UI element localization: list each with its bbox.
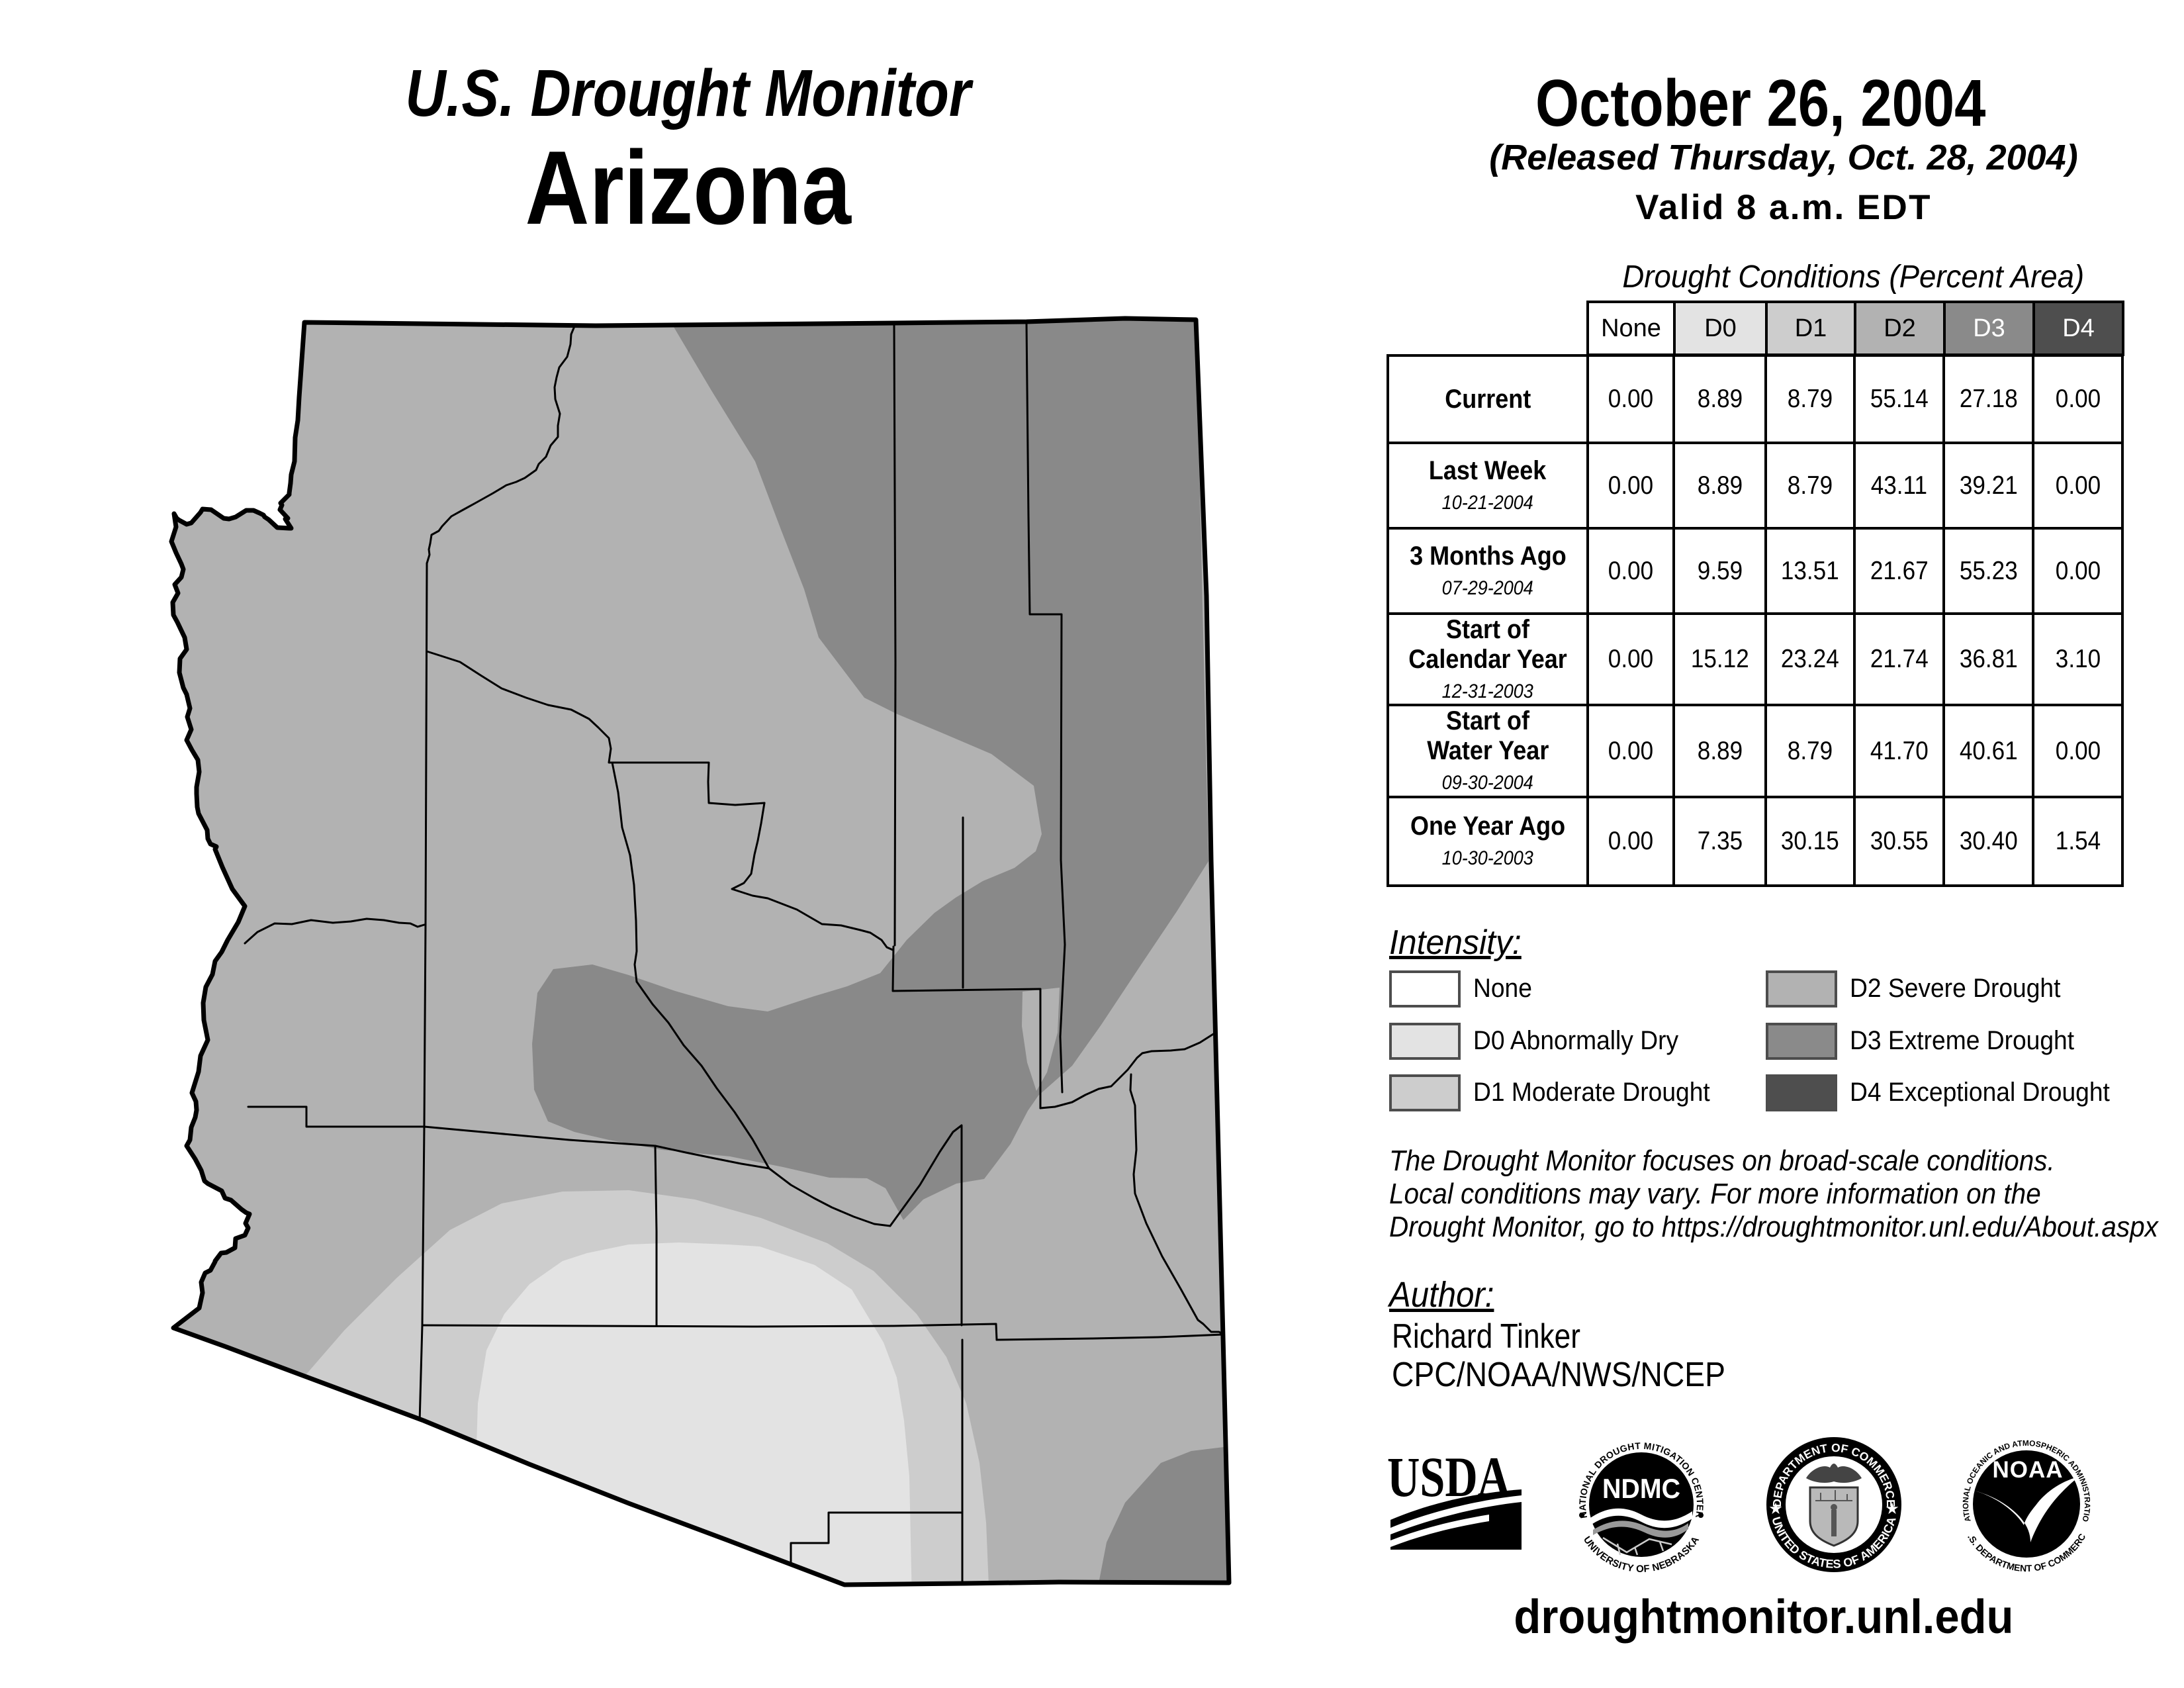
svg-text:U.S. DEPARTMENT OF COMMERCE: U.S. DEPARTMENT OF COMMERCE <box>0 0 2087 1573</box>
svg-text:★: ★ <box>1885 1500 1899 1518</box>
svg-text:★: ★ <box>1768 1500 1783 1518</box>
svg-text:NDMC: NDMC <box>1602 1473 1680 1504</box>
svg-text:NOAA: NOAA <box>1992 1457 2063 1483</box>
svg-text:NATIONAL OCEANIC AND ATMOSPHER: NATIONAL OCEANIC AND ATMOSPHERIC ADMINIS… <box>0 0 2092 1523</box>
